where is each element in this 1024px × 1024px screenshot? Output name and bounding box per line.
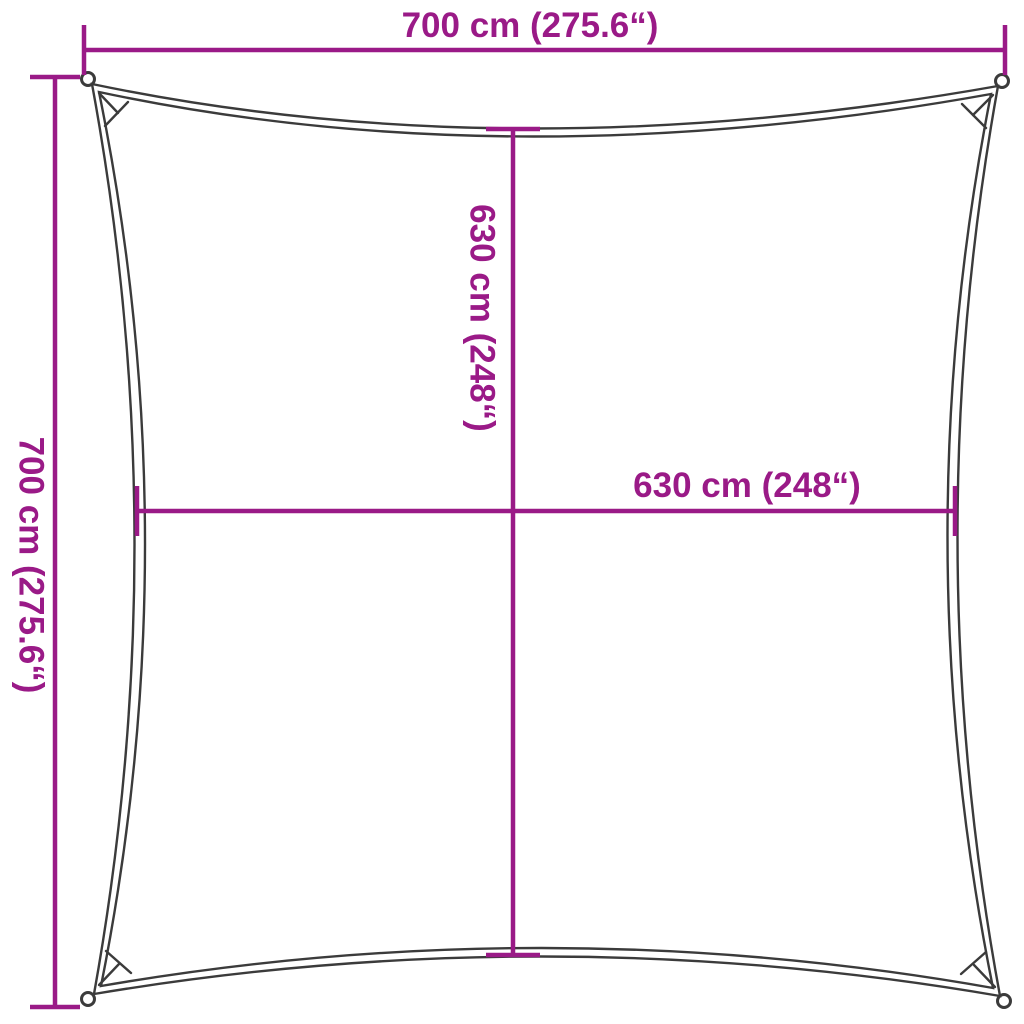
corner-patches <box>99 93 995 987</box>
dimension-label-inner-height: 630 cm (248“) <box>462 204 501 432</box>
dimension-label-total-width: 700 cm (275.6“) <box>402 7 659 46</box>
corner-patch-top-right <box>962 104 986 128</box>
corner-ring-bottom-left-icon <box>82 993 95 1006</box>
dimension-label-inner-width: 630 cm (248“) <box>633 467 861 506</box>
corner-rings <box>82 73 1011 1008</box>
corner-ring-top-right-icon <box>996 75 1009 88</box>
dimension-label-total-height: 700 cm (275.6“) <box>11 437 50 694</box>
corner-patch-bottom-left <box>106 951 131 973</box>
sail-outline <box>92 84 1000 996</box>
corner-ring-bottom-right-icon <box>998 995 1011 1008</box>
diagram-canvas <box>0 0 1024 1024</box>
corner-patch-bottom-right <box>961 952 986 974</box>
sail-edge-inner <box>99 92 993 988</box>
corner-seam-bottom-left <box>99 964 119 985</box>
sail-edge-outer <box>92 84 1000 996</box>
corner-patch-top-left <box>105 102 128 126</box>
corner-seam-bottom-right <box>974 965 995 987</box>
dimension-lines <box>30 25 1005 1007</box>
shade-sail-dimension-diagram: 700 cm (275.6“) 700 cm (275.6“) 630 cm (… <box>0 0 1024 1024</box>
